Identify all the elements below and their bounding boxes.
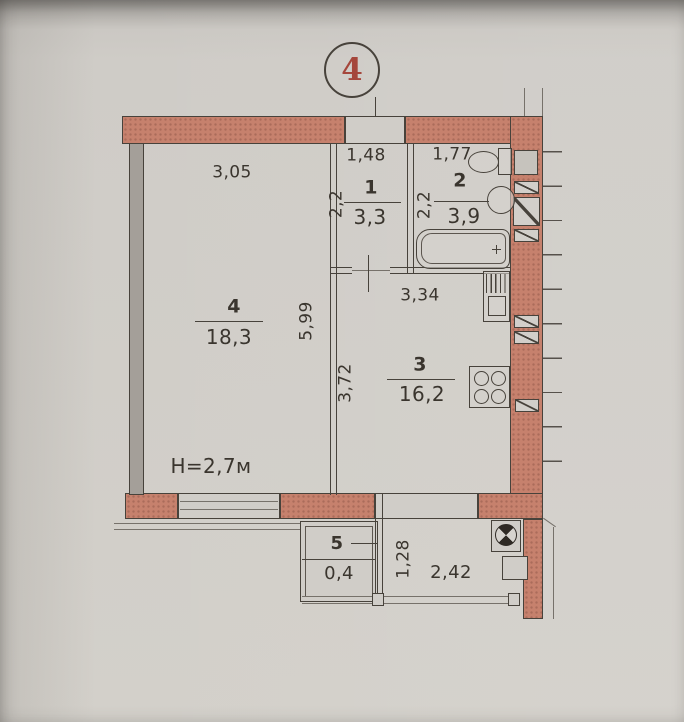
bottom-wall-right bbox=[478, 493, 543, 519]
room2-number: 2 bbox=[453, 172, 467, 191]
room4-number: 4 bbox=[227, 298, 241, 317]
stove-icon bbox=[469, 366, 510, 408]
section-circle: 4 bbox=[324, 42, 380, 98]
bottom-wall-left bbox=[125, 493, 178, 519]
toilet-tank-icon bbox=[498, 148, 512, 175]
door-tick bbox=[368, 255, 369, 292]
extension-line bbox=[524, 88, 525, 116]
window-line bbox=[180, 501, 278, 502]
bottom-wall-mid bbox=[280, 493, 375, 519]
room2-depth-dim: 2,2 bbox=[417, 191, 434, 219]
room1-width-dim: 1,48 bbox=[346, 148, 385, 165]
vent-shaft-icon bbox=[515, 399, 539, 412]
left-wall bbox=[129, 143, 144, 495]
room4-area: 18,3 bbox=[206, 327, 252, 347]
room5-area: 0,4 bbox=[324, 565, 354, 583]
room3-width-dim: 3,34 bbox=[400, 288, 439, 305]
panel-tick-marks bbox=[543, 118, 562, 490]
room4-depth-dim: 5,99 bbox=[299, 301, 316, 340]
vent-shaft-icon bbox=[514, 229, 539, 242]
room3-label-line bbox=[387, 379, 455, 380]
elevation-mark-icon bbox=[495, 524, 517, 546]
vent-shaft-icon bbox=[514, 181, 539, 194]
room4-label-line bbox=[195, 321, 263, 322]
railing-post bbox=[508, 593, 520, 606]
wall-hall-bath bbox=[407, 143, 414, 274]
room1-depth-dim: 2,2 bbox=[329, 190, 346, 218]
balcony-width-dim: 2,42 bbox=[430, 564, 472, 582]
toilet-icon bbox=[468, 151, 499, 173]
room5-number: 5 bbox=[331, 535, 344, 553]
adjacent-outline bbox=[543, 518, 556, 527]
window-line bbox=[180, 509, 278, 510]
room3-depth-dim: 3,72 bbox=[338, 363, 355, 402]
room1-area: 3,3 bbox=[353, 207, 386, 227]
room5-right-wall bbox=[375, 493, 383, 603]
section-number: 4 bbox=[341, 52, 363, 88]
room4-width-dim: 3,05 bbox=[212, 165, 251, 182]
window bbox=[178, 493, 280, 519]
balcony-depth-dim: 1,28 bbox=[396, 539, 413, 578]
balcony-slab-line bbox=[114, 523, 300, 524]
room2-area: 3,9 bbox=[447, 206, 480, 226]
balcony-railing bbox=[302, 603, 520, 604]
wall-niche bbox=[502, 556, 528, 580]
entrance-opening bbox=[345, 116, 405, 144]
room1-label-line bbox=[344, 202, 401, 203]
top-wall-left bbox=[122, 116, 345, 144]
vent-shaft-icon bbox=[513, 197, 540, 226]
railing-post bbox=[372, 593, 384, 606]
wall-hall-bottom bbox=[330, 267, 352, 274]
balcony-railing bbox=[302, 596, 520, 597]
vent-shaft-icon bbox=[514, 331, 539, 344]
duct-icon bbox=[514, 150, 538, 175]
room3-number: 3 bbox=[413, 356, 427, 375]
balcony-door-opening bbox=[375, 493, 478, 519]
room5-leader-line bbox=[351, 543, 377, 544]
room1-number: 1 bbox=[364, 179, 378, 198]
room2-label-line bbox=[434, 201, 489, 202]
vent-shaft-icon bbox=[514, 315, 539, 328]
room5-label-line bbox=[302, 559, 375, 560]
room3-area: 16,2 bbox=[399, 384, 445, 404]
ceiling-height-label: H=2,7м bbox=[170, 456, 251, 476]
adjacent-outline bbox=[553, 527, 554, 619]
washbasin-icon bbox=[487, 186, 515, 214]
floorplan-photo: 4 bbox=[0, 0, 684, 722]
door-opening-line bbox=[352, 270, 390, 271]
bathtub-drain-icon bbox=[496, 245, 497, 254]
drainer-icon bbox=[486, 274, 507, 293]
room2-width-dim: 1,77 bbox=[432, 147, 471, 164]
extension-line bbox=[542, 88, 543, 116]
kitchen-sink-icon bbox=[488, 296, 506, 316]
balcony-slab-line bbox=[114, 529, 300, 530]
